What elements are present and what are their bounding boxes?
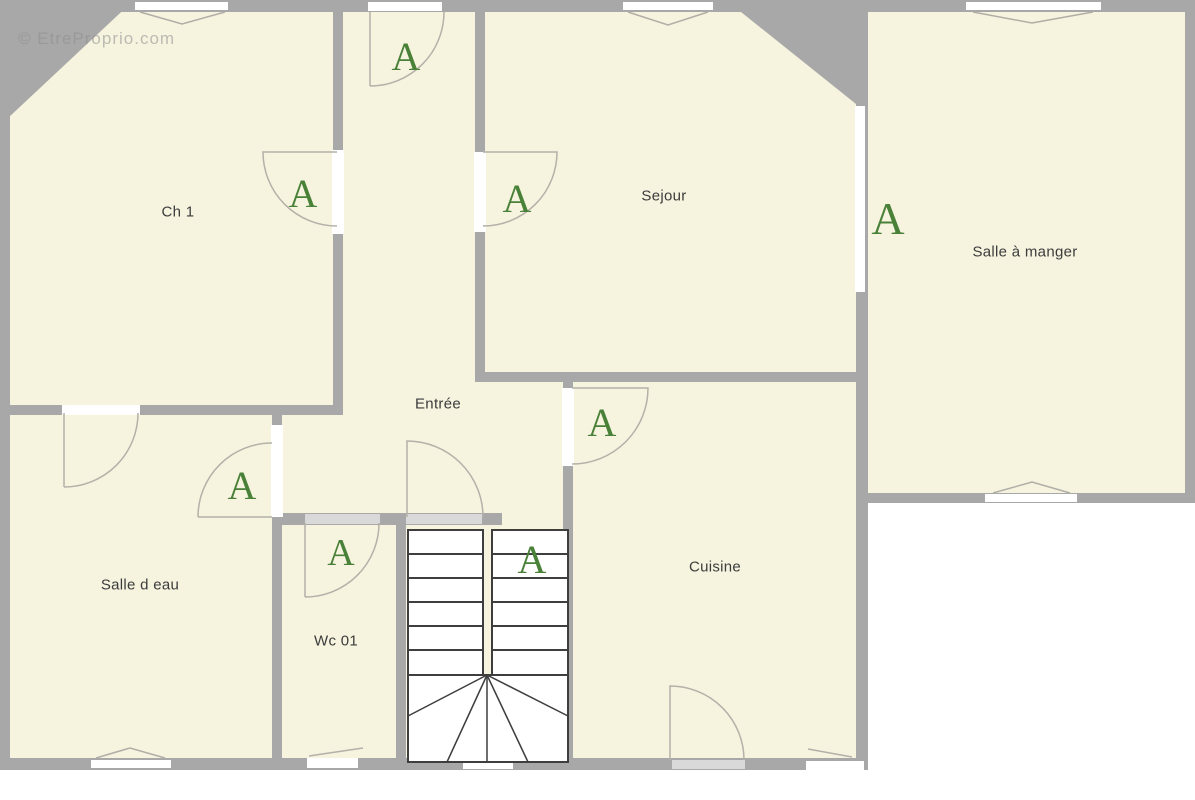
wall-right [1185, 0, 1195, 503]
window-ch1 [135, 2, 228, 10]
room-label-ch1: Ch 1 [162, 204, 195, 221]
opening-salle-d-eau-right [271, 425, 283, 517]
opening-wc-door [305, 514, 380, 524]
door-marker-salle-a-manger: A [871, 196, 904, 242]
outside-area [868, 503, 1195, 800]
opening-cuisine-bottom [672, 760, 745, 769]
opening-sejour-door [474, 152, 486, 232]
window-sejour [623, 2, 713, 10]
wall-ch1-bottom [0, 405, 343, 415]
window-salle-a-manger-top [966, 2, 1101, 10]
opening-entree-door [406, 514, 482, 524]
stairs-winder [408, 675, 568, 762]
room-label-entree: Entrée [415, 396, 461, 413]
door-marker-cuisine: A [588, 403, 617, 443]
wall-sejour-bottom [475, 372, 868, 382]
room-label-wc01: Wc 01 [314, 633, 358, 650]
watermark: © EtreProprio.com [18, 29, 175, 49]
wall-stairs-left [396, 523, 406, 770]
room-label-salle-d-eau: Salle d eau [101, 577, 179, 594]
door-marker-salle-d-eau: A [228, 466, 257, 506]
opening-salle-d-eau-top [62, 405, 140, 415]
floor-plan: © EtreProprio.com Ch 1 Sejour Salle à ma… [0, 0, 1195, 800]
opening-cuisine-bottom-right [806, 761, 864, 770]
window-salle-d-eau [91, 760, 171, 768]
room-label-cuisine: Cuisine [689, 559, 741, 576]
door-marker-wc01: A [327, 534, 354, 572]
opening-ch1-door [332, 150, 344, 234]
window-salle-a-manger-bottom [985, 494, 1077, 502]
room-label-salle-a-manger: Salle à manger [972, 244, 1077, 261]
opening-salle-a-manger-pass [855, 106, 865, 292]
wall-left [0, 0, 10, 770]
door-marker-ch1: A [289, 174, 318, 214]
opening-hallway-top [368, 2, 442, 11]
opening-cuisine-door [562, 388, 574, 466]
door-marker-stairs: A [518, 540, 547, 580]
door-marker-sejour: A [503, 179, 532, 219]
door-marker-hallway-top: A [392, 37, 421, 77]
room-label-sejour: Sejour [641, 188, 686, 205]
opening-wc-bottom [307, 758, 358, 768]
